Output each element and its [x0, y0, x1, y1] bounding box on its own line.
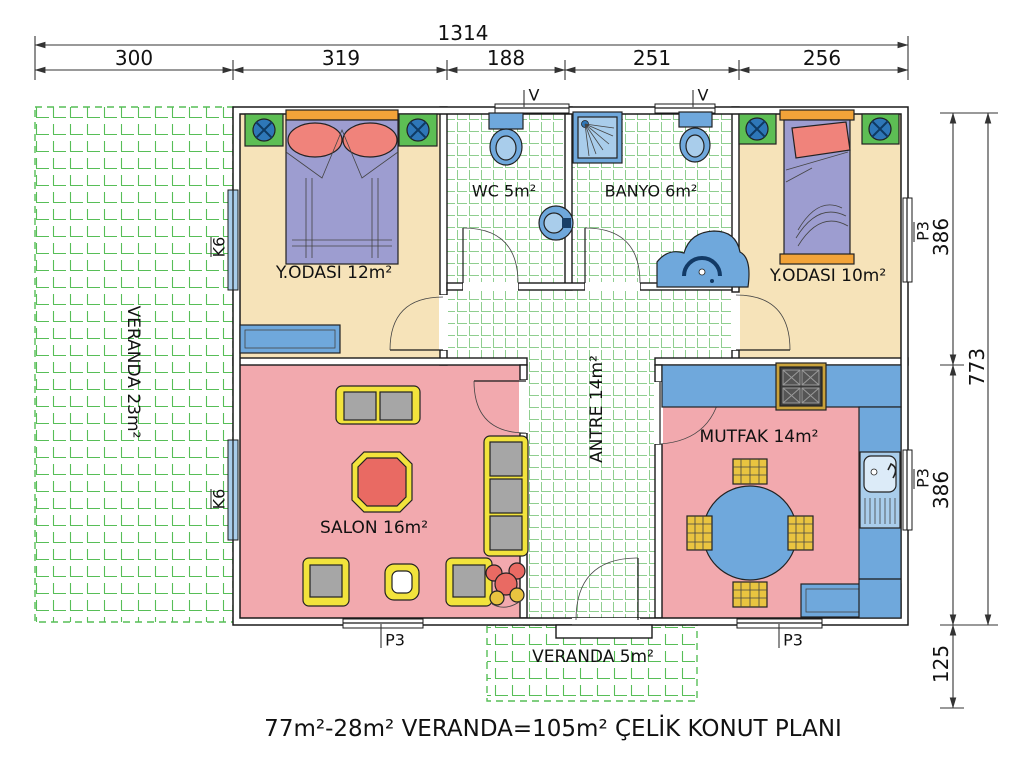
- room-label-hall: ANTRE 14m²: [587, 355, 607, 463]
- window-bedroom1-left: [228, 190, 238, 290]
- dining-table: [703, 486, 797, 580]
- single-bed: [780, 110, 854, 264]
- sofa: [484, 436, 528, 556]
- room-label-veranda-bottom: VERANDA 5m²: [532, 647, 654, 667]
- entrance-step: [556, 625, 652, 638]
- lamp-icon: [869, 118, 891, 140]
- dim-seg-319: 319: [322, 46, 360, 70]
- sink-icon: [539, 206, 573, 240]
- dim-seg-251: 251: [633, 46, 671, 70]
- dim-seg-300: 300: [115, 46, 153, 70]
- room-label-salon: SALON 16m²: [320, 518, 428, 538]
- toilet-icon: [489, 113, 523, 165]
- toilet-icon: [679, 112, 712, 162]
- chair: [687, 516, 712, 550]
- coffee-table: [352, 452, 412, 512]
- k6-marker-top: K6: [210, 237, 229, 258]
- dresser: [240, 325, 340, 353]
- k6-marker-bottom: K6: [210, 489, 229, 510]
- plan-caption: 77m²-28m² VERANDA=105m² ÇELİK KONUT PLAN…: [264, 716, 842, 742]
- shower-icon: [573, 112, 622, 163]
- window-salon-left: [228, 440, 238, 540]
- chair: [788, 516, 813, 550]
- loveseat: [336, 386, 420, 424]
- dim-seg-256: 256: [803, 46, 841, 70]
- dim-right-386-top: 386: [929, 218, 953, 256]
- lamp-icon: [746, 118, 768, 140]
- chair: [733, 459, 767, 484]
- dim-right-125: 125: [929, 645, 953, 683]
- window-kitchen-right: [903, 450, 912, 530]
- window-wc-top: [495, 104, 569, 113]
- lamp-icon: [253, 119, 275, 141]
- lamp-icon: [407, 119, 429, 141]
- room-label-kitchen: MUTFAK 14m²: [700, 427, 819, 447]
- room-label-bedroom1: Y.ODASI 12m²: [276, 263, 392, 283]
- armchair: [446, 558, 492, 606]
- side-table: [385, 564, 419, 600]
- dim-seg-188: 188: [487, 46, 525, 70]
- p3-marker-bottom-salon: P3: [385, 631, 405, 650]
- p3-marker-right-bottom: P3: [914, 468, 933, 488]
- kitchen-sink-icon: [860, 452, 900, 528]
- p3-marker-right-top: P3: [914, 221, 933, 241]
- room-label-wc: WC 5m²: [472, 182, 536, 201]
- window-salon-bottom: [343, 619, 423, 628]
- vent-marker-wc: V: [529, 86, 540, 105]
- floor-plan-page: 1314 300 319 188 251 256 386 773 386 125…: [0, 0, 1024, 768]
- dim-right-773: 773: [965, 348, 989, 386]
- dim-total-width: 1314: [438, 21, 489, 45]
- chair: [733, 582, 767, 607]
- room-label-veranda-left: VERANDA 23m²: [123, 306, 143, 439]
- vent-marker-bath: V: [698, 86, 709, 105]
- double-bed: [286, 110, 398, 264]
- armchair: [303, 558, 349, 606]
- window-bedroom2-right: [903, 198, 912, 282]
- floor-plan-drawing: [0, 0, 1024, 768]
- room-label-bath: BANYO 6m²: [605, 182, 698, 201]
- stove-icon: [776, 363, 826, 410]
- room-label-bedroom2: Y.ODASI 10m²: [770, 266, 886, 286]
- p3-marker-bottom-kitchen: P3: [783, 631, 803, 650]
- dim-right-386-bottom: 386: [929, 471, 953, 509]
- front-door-opening: [572, 618, 640, 625]
